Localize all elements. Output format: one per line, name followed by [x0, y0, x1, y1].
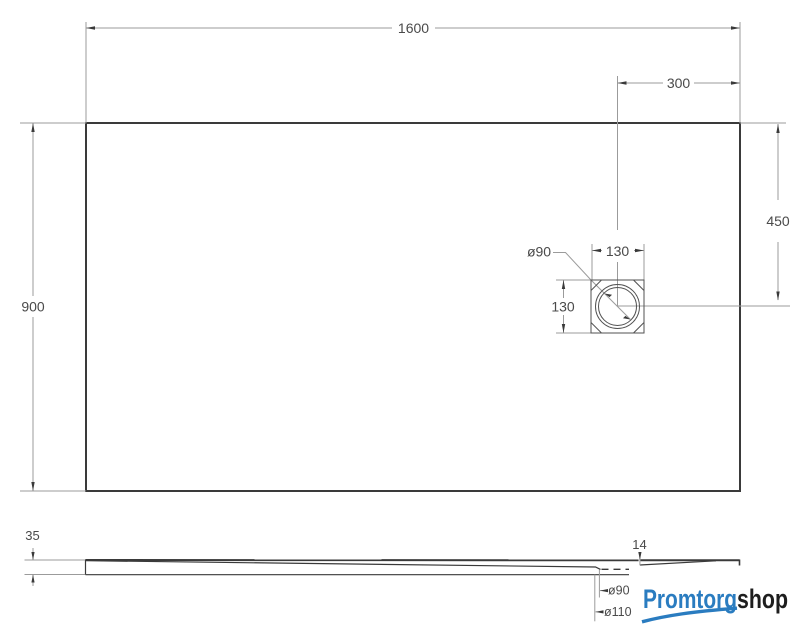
svg-text:130: 130: [606, 243, 630, 259]
svg-text:14: 14: [632, 537, 646, 552]
svg-text:900: 900: [21, 299, 45, 315]
svg-text:35: 35: [25, 528, 39, 543]
svg-text:ø90: ø90: [527, 244, 551, 260]
svg-text:ø110: ø110: [604, 605, 632, 619]
svg-text:300: 300: [667, 75, 691, 91]
svg-text:1600: 1600: [398, 20, 429, 36]
svg-text:450: 450: [766, 213, 790, 229]
svg-text:ø90: ø90: [608, 584, 630, 598]
svg-text:130: 130: [551, 299, 575, 315]
svg-text:shop: shop: [737, 584, 788, 614]
